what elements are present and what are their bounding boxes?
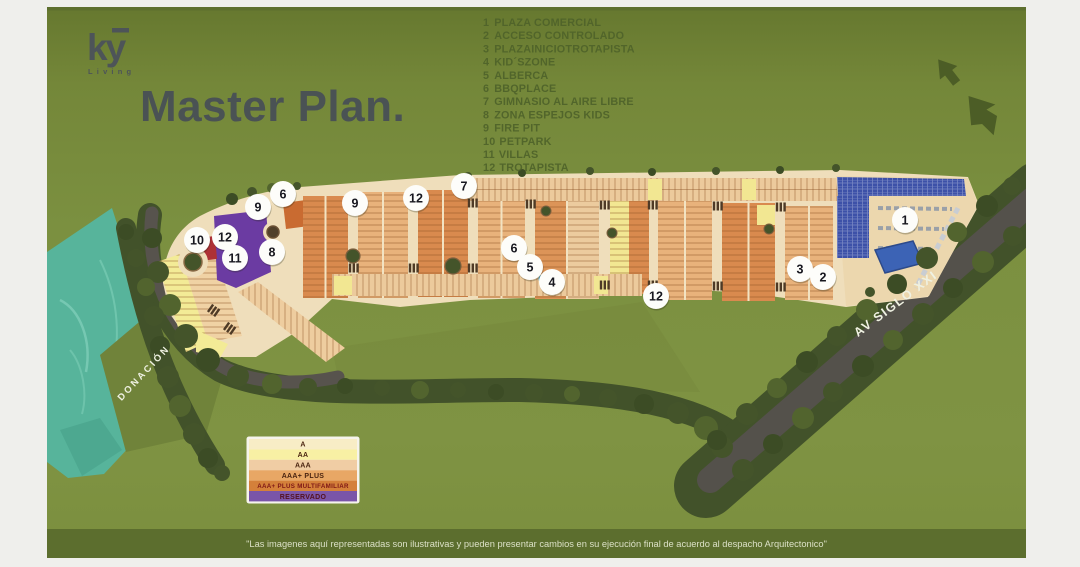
svg-text:2ACCESO CONTROLADO: 2ACCESO CONTROLADO	[483, 30, 624, 42]
svg-text:3PLAZAINICIOTROTAPISTA: 3PLAZAINICIOTROTAPISTA	[483, 43, 635, 55]
svg-text:6: 6	[280, 187, 287, 201]
svg-text:7GIMNASIO AL AIRE LIBRE: 7GIMNASIO AL AIRE LIBRE	[483, 96, 634, 108]
logo-text: ky	[87, 27, 127, 68]
logo-macron	[112, 28, 129, 33]
page: { "brand": {"name": "ky", "tagline": "Li…	[0, 0, 1080, 567]
brand-logo: ky Living	[87, 27, 135, 76]
svg-text:9: 9	[255, 200, 262, 214]
top-lot-strip	[470, 178, 838, 201]
disclaimer-text: "Las imagenes aquí representadas son ilu…	[246, 539, 827, 549]
svg-text:12: 12	[649, 289, 663, 303]
svg-text:4: 4	[549, 275, 556, 289]
svg-text:4KID´SZONE: 4KID´SZONE	[483, 57, 555, 69]
lot-legend-rows: A AA AAA AAA+ PLUS AAA+ PLUS MULTIFAMILI…	[249, 439, 357, 501]
svg-text:RESERVADO: RESERVADO	[280, 494, 327, 501]
svg-text:12TROTAPISTA: 12TROTAPISTA	[483, 162, 569, 174]
page-title: Master Plan.	[140, 82, 405, 131]
svg-text:12: 12	[218, 230, 232, 244]
svg-text:5: 5	[527, 260, 534, 274]
masterplan-poster: AV SIGLO XXI DONACIÓN 9 6 10 12 11 8 9 1…	[47, 7, 1026, 558]
svg-text:3: 3	[797, 262, 804, 276]
svg-text:9: 9	[352, 196, 359, 210]
svg-text:9FIRE PIT: 9FIRE PIT	[483, 123, 540, 135]
svg-text:AA: AA	[298, 452, 309, 459]
svg-text:AAA+ PLUS: AAA+ PLUS	[282, 473, 325, 480]
svg-text:12: 12	[409, 191, 423, 205]
top-edge-strip	[47, 7, 1026, 11]
svg-text:1PLAZA COMERCIAL: 1PLAZA COMERCIAL	[483, 17, 601, 29]
svg-text:11: 11	[228, 251, 241, 265]
svg-text:7: 7	[461, 179, 468, 193]
svg-text:2: 2	[820, 270, 827, 284]
direction-arrows-icon	[929, 53, 1009, 143]
disclaimer-bar: "Las imagenes aquí representadas son ilu…	[47, 529, 1026, 558]
lot-legend: A AA AAA AAA+ PLUS AAA+ PLUS MULTIFAMILI…	[247, 437, 360, 504]
svg-text:8: 8	[269, 245, 276, 259]
svg-text:1: 1	[902, 213, 909, 227]
bottom-lot-strip	[332, 274, 642, 296]
svg-text:8ZONA ESPEJOS KIDS: 8ZONA ESPEJOS KIDS	[483, 109, 610, 121]
site-map-svg: AV SIGLO XXI DONACIÓN 9 6 10 12 11 8 9 1…	[47, 7, 1026, 558]
svg-text:6: 6	[511, 241, 518, 255]
svg-text:A: A	[300, 442, 305, 449]
svg-text:10PETPARK: 10PETPARK	[483, 136, 552, 148]
svg-text:10: 10	[190, 233, 204, 247]
logo-tagline: Living	[88, 67, 135, 76]
svg-text:11VILLAS: 11VILLAS	[483, 149, 538, 161]
svg-text:AAA+ PLUS MULTIFAMILIAR: AAA+ PLUS MULTIFAMILIAR	[257, 483, 349, 490]
amenities-legend: 1PLAZA COMERCIAL 2ACCESO CONTROLADO 3PLA…	[483, 17, 635, 174]
svg-text:AAA: AAA	[295, 462, 311, 469]
svg-text:6BBQPLACE: 6BBQPLACE	[483, 83, 556, 95]
svg-text:5ALBERCA: 5ALBERCA	[483, 70, 548, 82]
